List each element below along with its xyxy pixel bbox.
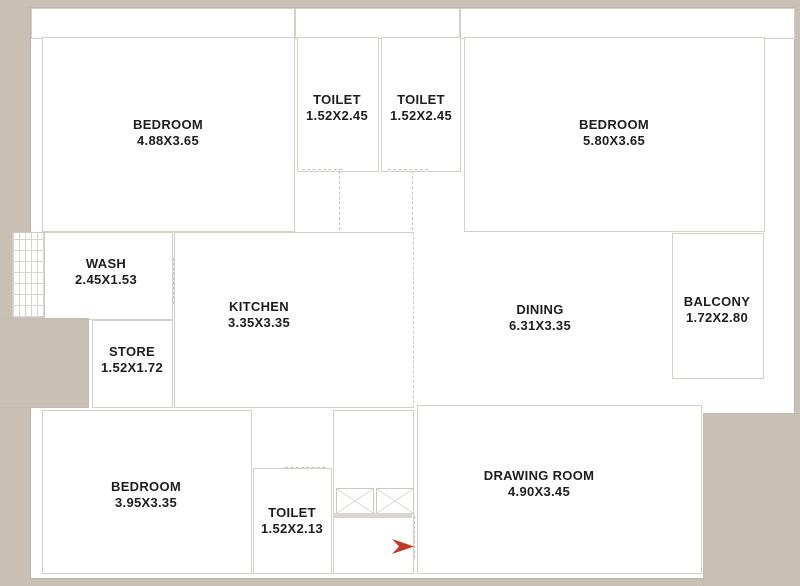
room-label-drawing-room: DRAWING ROOM 4.90X3.45 — [484, 468, 594, 500]
room-dims: 1.52X2.13 — [261, 521, 323, 537]
top-band-middle — [295, 8, 460, 39]
room-dims: 1.52X2.45 — [390, 108, 452, 124]
room-name: BEDROOM — [579, 117, 649, 133]
room-name: BEDROOM — [133, 117, 203, 133]
toilet-door-opening — [388, 169, 428, 170]
room-dims: 2.45X1.53 — [75, 272, 137, 288]
toilet-door-opening — [302, 169, 342, 170]
toilet-door-opening — [285, 467, 325, 468]
room-dims: 1.52X1.72 — [101, 360, 163, 376]
foyer-wall-band — [333, 513, 412, 518]
room-name: BEDROOM — [111, 479, 181, 495]
room-dims: 3.95X3.35 — [111, 495, 181, 511]
room-kitchen — [174, 232, 414, 408]
room-name: DINING — [509, 302, 571, 318]
floor-plan: BEDROOM 4.88X3.65 TOILET 1.52X2.45 TOILE… — [0, 0, 800, 586]
duct-hatch — [12, 232, 45, 318]
shaft-x-icon — [376, 488, 414, 514]
room-label-kitchen: KITCHEN 3.35X3.35 — [228, 299, 290, 331]
room-label-toilet-top-left: TOILET 1.52X2.45 — [306, 92, 368, 124]
shaft-x-icon — [336, 488, 374, 514]
room-label-toilet-top-right: TOILET 1.52X2.45 — [390, 92, 452, 124]
room-label-balcony: BALCONY 1.72X2.80 — [684, 294, 750, 326]
passage-opening — [412, 171, 413, 230]
room-name: TOILET — [390, 92, 452, 108]
room-name: TOILET — [261, 505, 323, 521]
top-band-left — [31, 8, 295, 39]
room-label-bedroom-bottom-left: BEDROOM 3.95X3.35 — [111, 479, 181, 511]
room-label-bedroom-top-left: BEDROOM 4.88X3.65 — [133, 117, 203, 149]
room-label-toilet-bottom: TOILET 1.52X2.13 — [261, 505, 323, 537]
room-dims: 1.72X2.80 — [684, 310, 750, 326]
room-dims: 5.80X3.65 — [579, 133, 649, 149]
kitchen-door-opening — [173, 258, 174, 304]
room-name: TOILET — [306, 92, 368, 108]
top-band-right — [460, 8, 795, 39]
room-name: STORE — [101, 344, 163, 360]
room-label-wash: WASH 2.45X1.53 — [75, 256, 137, 288]
entry-arrow-icon — [391, 538, 415, 555]
room-name: KITCHEN — [228, 299, 290, 315]
external-recess-left — [0, 318, 89, 408]
room-dims: 4.90X3.45 — [484, 484, 594, 500]
room-dims: 6.31X3.35 — [509, 318, 571, 334]
external-recess-bottom-right — [703, 413, 800, 586]
room-label-store: STORE 1.52X1.72 — [101, 344, 163, 376]
room-name: BALCONY — [684, 294, 750, 310]
room-dims: 1.52X2.45 — [306, 108, 368, 124]
passage-opening — [339, 171, 340, 230]
room-label-dining: DINING 6.31X3.35 — [509, 302, 571, 334]
room-name: DRAWING ROOM — [484, 468, 594, 484]
room-dims: 4.88X3.65 — [133, 133, 203, 149]
room-dims: 3.35X3.35 — [228, 315, 290, 331]
room-name: WASH — [75, 256, 137, 272]
room-label-bedroom-top-right: BEDROOM 5.80X3.65 — [579, 117, 649, 149]
